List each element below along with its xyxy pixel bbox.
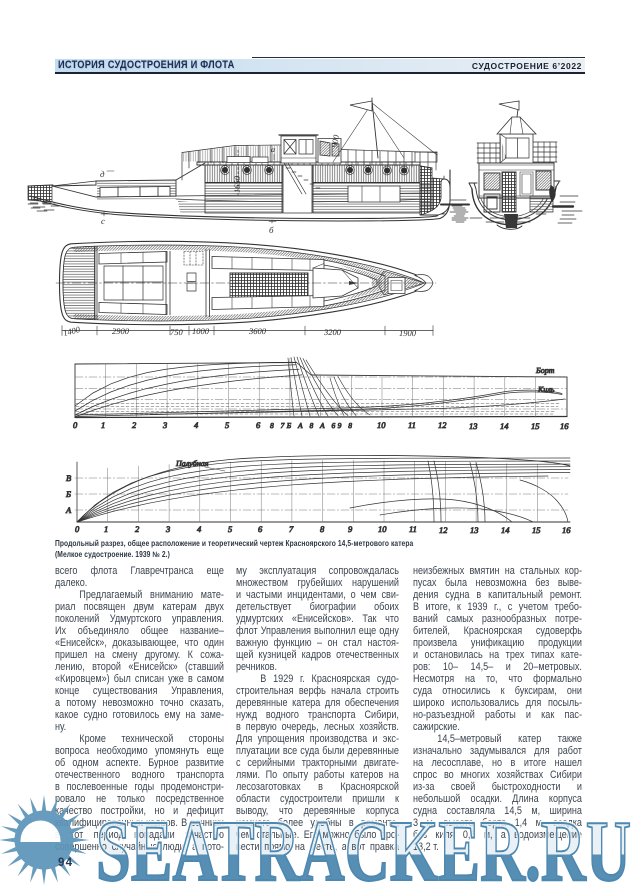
- svg-text:4: 4: [194, 420, 199, 430]
- svg-text:13: 13: [469, 421, 478, 431]
- svg-text:2: 2: [135, 524, 140, 534]
- svg-text:9: 9: [348, 524, 353, 534]
- svg-text:6: 6: [256, 420, 261, 430]
- svg-text:А: А: [65, 505, 72, 515]
- svg-text:Борт: Борт: [535, 366, 555, 375]
- svg-text:8 7Б А 8 А 69 8: 8 7Б А 8 А 69 8: [270, 421, 352, 430]
- svg-text:11: 11: [409, 524, 417, 534]
- svg-text:5: 5: [228, 524, 232, 534]
- svg-text:11: 11: [408, 420, 416, 430]
- svg-text:12: 12: [438, 420, 447, 430]
- svg-text:1900: 1900: [399, 328, 417, 338]
- svg-text:15: 15: [531, 421, 540, 431]
- svg-text:0: 0: [75, 524, 80, 534]
- svg-text:10: 10: [378, 524, 387, 534]
- svg-text:1400: 1400: [62, 324, 82, 338]
- svg-text:1650: 1650: [232, 175, 242, 193]
- svg-text:а: а: [271, 145, 275, 154]
- svg-text:7: 7: [289, 524, 294, 534]
- svg-text:5: 5: [225, 420, 229, 430]
- svg-text:б: б: [269, 225, 274, 235]
- svg-text:Б: Б: [65, 489, 71, 499]
- svg-text:15: 15: [532, 525, 541, 535]
- svg-text:16: 16: [560, 421, 569, 431]
- svg-text:1: 1: [101, 420, 105, 430]
- svg-text:3200: 3200: [323, 327, 342, 337]
- svg-text:3600: 3600: [248, 326, 267, 336]
- svg-text:750: 750: [170, 327, 184, 337]
- svg-text:2: 2: [132, 420, 137, 430]
- svg-text:3: 3: [162, 420, 167, 430]
- svg-text:В: В: [66, 473, 71, 483]
- svg-text:0: 0: [73, 420, 78, 430]
- svg-text:д: д: [100, 169, 105, 179]
- svg-text:c: c: [101, 216, 105, 226]
- svg-text:3: 3: [165, 524, 170, 534]
- svg-text:Киль: Киль: [537, 385, 555, 394]
- svg-text:1000: 1000: [192, 326, 210, 336]
- svg-text:Палубная: Палубная: [175, 459, 209, 468]
- svg-text:8: 8: [320, 524, 325, 534]
- svg-text:4: 4: [197, 524, 202, 534]
- svg-text:14: 14: [501, 525, 510, 535]
- svg-text:14: 14: [500, 421, 509, 431]
- svg-text:12: 12: [439, 525, 448, 535]
- svg-text:16: 16: [562, 525, 571, 535]
- svg-text:10: 10: [377, 420, 386, 430]
- svg-text:SEATRACKER.RU: SEATRACKER.RU: [96, 802, 631, 888]
- svg-text:6: 6: [258, 524, 263, 534]
- svg-text:1: 1: [104, 524, 108, 534]
- svg-text:13: 13: [470, 525, 479, 535]
- svg-text:2900: 2900: [112, 326, 130, 336]
